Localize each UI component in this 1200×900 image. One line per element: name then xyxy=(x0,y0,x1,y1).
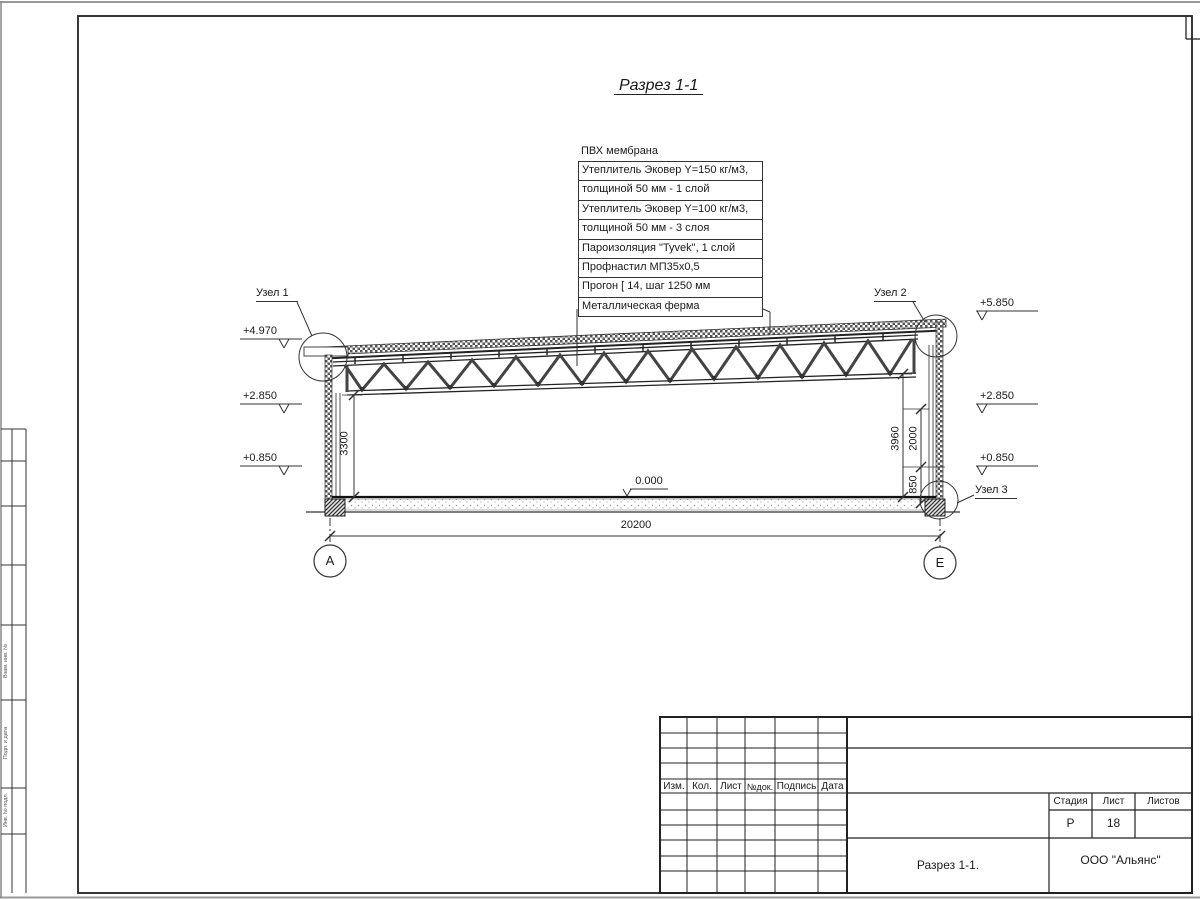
callout-row: Прогон [ 14, шаг 1250 мм xyxy=(579,278,762,297)
callout-row: толщиной 50 мм - 1 слой xyxy=(579,181,762,200)
elevation-zero: 0.000 xyxy=(630,475,668,488)
material-callout: ПВХ мембрана Утеплитель Эковер Y=150 кг/… xyxy=(578,143,763,317)
strip-label-3: Инв. № подл. xyxy=(3,775,9,845)
dim-right-lower: 850 xyxy=(908,465,921,505)
strip-label-2: Подп. и дата xyxy=(3,708,9,778)
tb-header-data: Дата xyxy=(818,781,847,793)
axis-bubble-a: А xyxy=(320,554,340,567)
callout-row: Утеплитель Эковер Y=150 кг/м3, xyxy=(579,162,762,181)
node-3-label: Узел 3 xyxy=(975,484,1017,499)
tb-sheet-value: 18 xyxy=(1092,816,1135,830)
dim-right-upper: 2000 xyxy=(908,419,921,459)
callout-row: Утеплитель Эковер Y=100 кг/м3, xyxy=(579,201,762,220)
tb-header-podpis: Подпись xyxy=(775,781,818,793)
node-1-label: Узел 1 xyxy=(256,287,298,302)
tb-company: ООО "Альянс" xyxy=(1049,853,1192,867)
elevation-right-3: +0.850 xyxy=(980,452,1014,465)
callout-box: Утеплитель Эковер Y=150 кг/м3, толщиной … xyxy=(578,162,763,317)
tb-stage-label: Стадия xyxy=(1049,796,1092,808)
dim-right-total: 3960 xyxy=(890,419,903,459)
tb-sheet-label: Лист xyxy=(1092,796,1135,808)
tb-header-dok: №док. xyxy=(745,781,775,793)
callout-row: Металлическая ферма xyxy=(579,298,762,317)
tb-drawing-name: Разрез 1-1. xyxy=(847,858,1049,872)
tb-header-izm: Изм. xyxy=(661,781,687,793)
drawing-sheet: Разрез 1-1 ПВХ мембрана Утеплитель Экове… xyxy=(0,0,1200,900)
callout-row: толщиной 50 мм - 3 слоя xyxy=(579,220,762,239)
dim-overall: 20200 xyxy=(606,519,666,532)
floor-and-ground xyxy=(306,497,960,516)
elevation-left-3: +0.850 xyxy=(243,452,277,465)
callout-row: Профнастил МП35х0,5 xyxy=(579,259,762,278)
tb-header-list: Лист xyxy=(717,781,745,793)
node-2-label: Узел 2 xyxy=(874,287,916,302)
page-title: Разрез 1-1 xyxy=(614,79,703,95)
strip-label-1: Взам. инв. № xyxy=(3,626,9,696)
elevation-left-2: +2.850 xyxy=(243,390,277,403)
tb-stage-value: Р xyxy=(1049,816,1092,830)
dim-left-height: 3300 xyxy=(339,424,352,464)
roof-assembly xyxy=(304,319,946,364)
tb-sheets-label: Листов xyxy=(1135,796,1192,808)
callout-row: Пароизоляция "Tyvek", 1 слой xyxy=(579,240,762,259)
elevation-left-1: +4.970 xyxy=(243,325,277,338)
elevation-right-1: +5.850 xyxy=(980,297,1014,310)
dimension-lines xyxy=(325,369,945,541)
sheet-frame xyxy=(0,2,1200,898)
axis-bubble-e: Е xyxy=(930,556,950,569)
drawing-canvas xyxy=(0,0,1200,900)
tb-header-kol: Кол. xyxy=(687,781,717,793)
callout-row: ПВХ мембрана xyxy=(578,143,763,162)
elevation-right-2: +2.850 xyxy=(980,390,1014,403)
